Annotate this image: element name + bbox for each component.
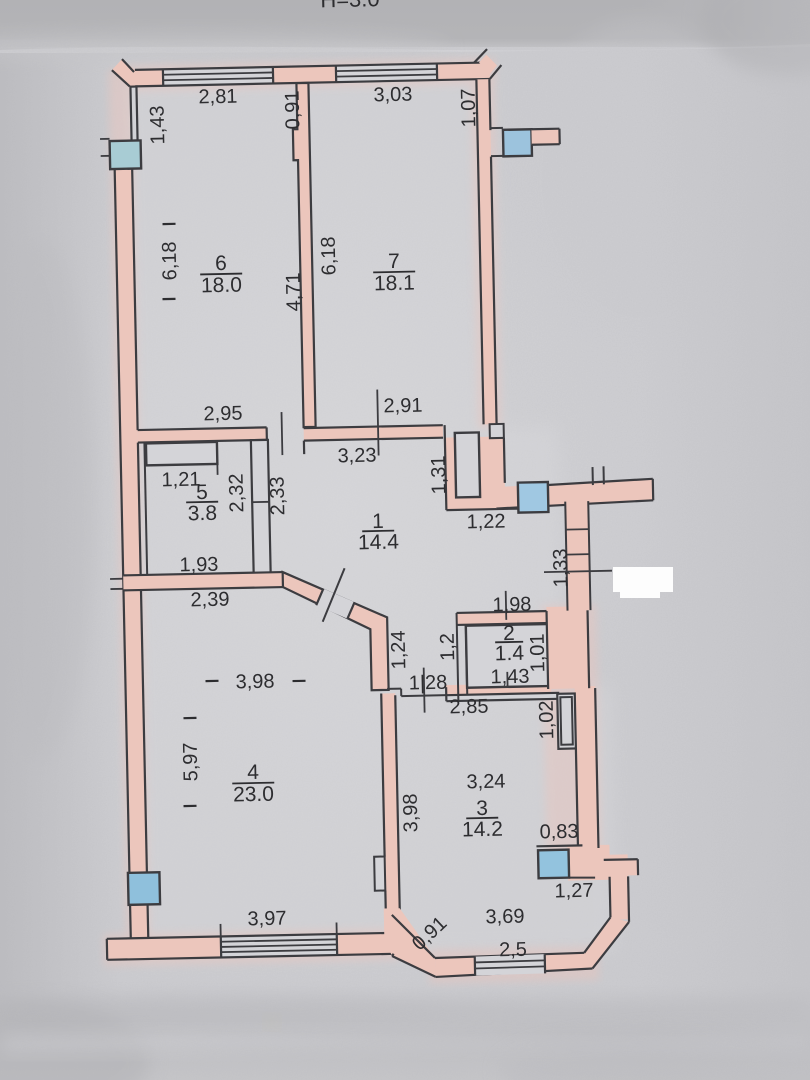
svg-text:18.0: 18.0 (201, 274, 242, 298)
svg-text:1: 1 (372, 510, 384, 533)
svg-text:6,18: 6,18 (318, 236, 341, 275)
svg-text:4,71: 4,71 (283, 272, 306, 311)
svg-text:1,93: 1,93 (179, 554, 218, 577)
svg-text:2,33: 2,33 (267, 476, 290, 515)
svg-text:5: 5 (196, 481, 208, 504)
svg-text:4: 4 (247, 761, 259, 784)
svg-text:2,91: 2,91 (383, 395, 422, 418)
svg-text:5,97: 5,97 (180, 742, 203, 781)
svg-text:1,33: 1,33 (550, 548, 573, 587)
svg-text:1,27: 1,27 (554, 880, 593, 903)
svg-text:2,39: 2,39 (190, 589, 229, 612)
svg-text:1,02: 1,02 (536, 700, 559, 739)
svg-text:1,98: 1,98 (492, 594, 531, 617)
svg-text:1,43: 1,43 (147, 105, 170, 144)
svg-text:2,5: 2,5 (499, 939, 527, 962)
svg-text:3,24: 3,24 (466, 771, 505, 794)
svg-text:1,31: 1,31 (428, 455, 451, 494)
svg-text:1,43: 1,43 (490, 666, 529, 689)
svg-text:3,97: 3,97 (247, 908, 286, 931)
svg-text:1,24: 1,24 (388, 630, 411, 669)
svg-text:18.1: 18.1 (374, 272, 415, 296)
svg-text:2,32: 2,32 (226, 473, 249, 512)
svg-text:1,07: 1,07 (458, 88, 481, 127)
svg-text:3: 3 (476, 797, 488, 820)
svg-text:1|28: 1|28 (408, 672, 447, 695)
svg-text:1.4: 1.4 (495, 642, 525, 666)
svg-text:1,2: 1,2 (437, 633, 460, 661)
svg-text:6,18: 6,18 (159, 241, 182, 280)
svg-text:0,91: 0,91 (282, 90, 305, 129)
svg-text:1,21: 1,21 (161, 469, 200, 492)
svg-text:Н=3.0: Н=3.0 (320, 0, 380, 12)
svg-text:3,23: 3,23 (337, 445, 376, 468)
svg-text:2,95: 2,95 (203, 403, 242, 426)
svg-text:3,98: 3,98 (400, 793, 423, 832)
svg-text:3.8: 3.8 (188, 502, 218, 526)
svg-text:14.4: 14.4 (358, 531, 400, 555)
svg-text:1,22: 1,22 (466, 511, 505, 534)
svg-text:2,85: 2,85 (449, 696, 488, 719)
svg-text:6: 6 (215, 252, 227, 275)
svg-text:7: 7 (388, 250, 400, 273)
svg-text:1,01: 1,01 (527, 633, 550, 672)
svg-text:3,98: 3,98 (235, 671, 274, 694)
svg-text:3,03: 3,03 (373, 84, 412, 107)
svg-text:0,83: 0,83 (539, 821, 578, 844)
svg-text:23.0: 23.0 (233, 783, 274, 807)
svg-text:2,81: 2,81 (198, 86, 237, 109)
svg-text:14.2: 14.2 (462, 818, 503, 842)
svg-text:3,69: 3,69 (485, 906, 524, 929)
